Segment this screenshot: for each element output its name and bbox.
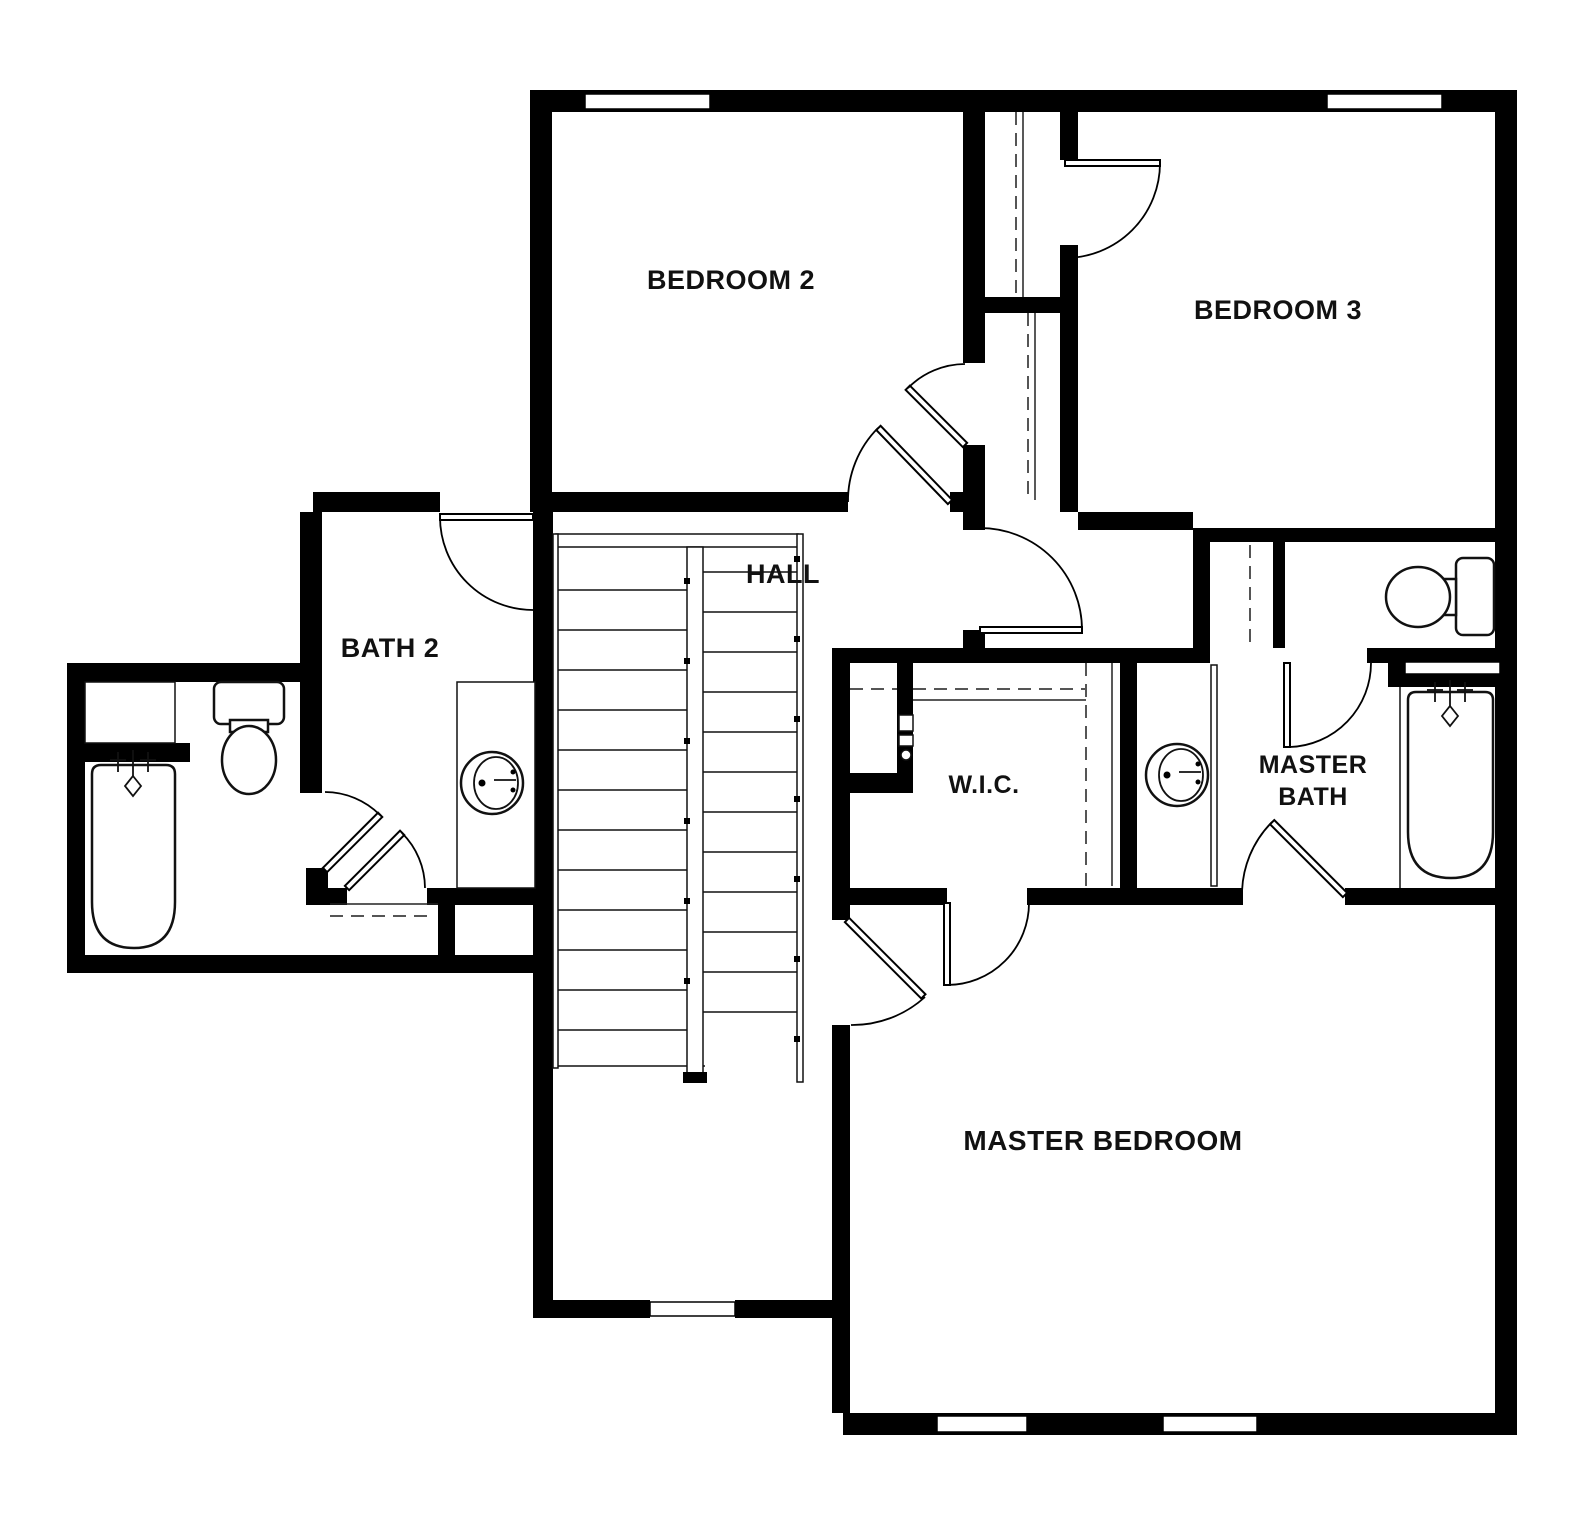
wall-bath2-closet-top <box>427 888 543 905</box>
wall-masterbath-bottom <box>1345 888 1517 905</box>
stair-treads-right-flight <box>703 572 797 1012</box>
door-swing-arc <box>1290 663 1371 747</box>
wall-bath2-bottom <box>67 955 553 973</box>
toilet-icon-bath2 <box>214 682 284 794</box>
door-leaf <box>1284 663 1290 747</box>
wall-suite-left-upper <box>832 663 850 920</box>
door-swing-arc <box>402 833 425 888</box>
wall-closetcol-right-mid <box>1060 245 1078 297</box>
closet-annex-linen <box>85 682 175 743</box>
stair-center-rail <box>687 547 703 1078</box>
wall-loft-bottom-left <box>533 1300 650 1318</box>
wall-closetcol-right-upper <box>1060 90 1078 160</box>
door-leaf <box>1065 160 1160 166</box>
wall-wic-bottom-left <box>850 888 947 905</box>
label-master-bath-1: MASTER <box>1259 751 1368 779</box>
wall-closetcol-left-upper <box>963 90 985 297</box>
door-swing-arc <box>908 364 965 388</box>
wall-bath2-closet-divider <box>438 905 455 958</box>
wall-stair-left <box>533 512 553 1318</box>
wall-wic-bath-divider <box>1120 663 1137 888</box>
wall-annex-top <box>67 663 313 682</box>
floor-plan: BEDROOM 2 BEDROOM 3 HALL BATH 2 W.I.C. M… <box>0 0 1573 1536</box>
wall-annex-closet-bottom <box>67 743 190 762</box>
door-leaf <box>980 627 1082 633</box>
door-swing-arc <box>848 428 878 502</box>
door-bedroom2-closet <box>906 364 968 447</box>
stair-rail-end-cap <box>683 1072 707 1083</box>
wall-wic-bottom-mid <box>1027 888 1243 905</box>
bathtub-icon-bath2 <box>92 750 175 948</box>
door-swing-arc <box>1065 163 1160 258</box>
label-hall: HALL <box>746 559 820 589</box>
window-loft <box>650 1302 735 1316</box>
label-bath2: BATH 2 <box>341 633 440 663</box>
door-swing-arc <box>947 903 1029 985</box>
wall-closetcol-divider <box>963 297 1078 313</box>
door-leaf <box>906 386 968 448</box>
wall-bath2-left-stub <box>306 868 328 905</box>
label-bedroom2: BEDROOM 2 <box>647 265 815 295</box>
wall-wic-nook-bottom <box>850 773 913 793</box>
wall-tub-niche-bottom <box>1388 673 1517 687</box>
closet-lines <box>85 112 1250 916</box>
wall-bath2-left <box>300 512 322 793</box>
toilet-icon-master <box>1386 558 1494 635</box>
door-wic <box>944 903 1029 985</box>
wall-closetcol-left-low <box>963 445 985 512</box>
door-swing-arc <box>1242 822 1272 895</box>
door-bedroom3-closet <box>1065 160 1160 258</box>
window-tub-niche <box>1405 662 1500 674</box>
wall-bedroom3-bottom-west <box>1078 512 1193 530</box>
wall-masterbath-top-east <box>1367 648 1517 663</box>
stair-treads-left-flight <box>558 590 705 1066</box>
label-bedroom3: BEDROOM 3 <box>1194 295 1362 325</box>
staircase <box>553 534 803 1083</box>
door-leaf <box>845 918 926 999</box>
door-master-bedroom-entry <box>845 918 926 1025</box>
wall-linen-left <box>1193 542 1210 663</box>
stair-right-rail <box>797 534 803 1082</box>
label-master-bedroom: MASTER BEDROOM <box>963 1125 1242 1156</box>
door-bedroom2-entry <box>848 426 952 504</box>
wall-wic-top <box>832 648 1193 663</box>
stair-left-stringer <box>553 534 558 1068</box>
wall-loft-bottom-right <box>735 1300 848 1318</box>
door-leaf <box>440 514 533 520</box>
door-swing-arc <box>851 997 925 1025</box>
wall-suite-left-lower <box>832 1025 850 1413</box>
utility-panel-icon <box>899 715 913 760</box>
vanity-counter-master <box>1211 665 1217 886</box>
stair-top-landing <box>556 534 798 547</box>
wall-bedroom3-bottom-east <box>1193 528 1517 542</box>
door-leaf <box>944 903 950 985</box>
wall-bedroom2-left <box>530 90 552 512</box>
wall-bath2-closet-stub <box>328 888 347 905</box>
wall-closetcol-left-mid <box>963 313 985 363</box>
door-swing-arc <box>980 528 1082 630</box>
wall-right <box>1495 90 1517 1435</box>
wall-closetcol-right-low <box>1060 313 1078 512</box>
door-hall-master-vestibule <box>980 528 1082 633</box>
door-swing-arc <box>440 517 533 610</box>
bathtub-icon-master <box>1400 680 1493 888</box>
label-master-bath-2: BATH <box>1278 783 1348 811</box>
sink-vanity-bath2 <box>457 682 535 888</box>
wall-annex-left <box>67 663 85 973</box>
window-master-1 <box>937 1416 1027 1432</box>
wall-linen-toilet-divider <box>1273 542 1285 648</box>
wall-bedroom2-bottom <box>533 492 848 512</box>
window-bedroom3 <box>1327 94 1442 109</box>
door-master-toilet-area <box>1284 663 1371 747</box>
door-leaf <box>876 426 952 504</box>
label-wic: W.I.C. <box>948 771 1019 799</box>
window-bedroom2 <box>585 94 710 109</box>
door-swing-arc <box>325 792 380 815</box>
door-bath2 <box>440 514 533 610</box>
door-master-bath-entry <box>1242 820 1347 897</box>
window-master-2 <box>1163 1416 1257 1432</box>
door-leaf <box>1270 820 1347 897</box>
sink-vanity-master <box>1146 665 1217 886</box>
wall-bath2-top <box>313 492 440 512</box>
